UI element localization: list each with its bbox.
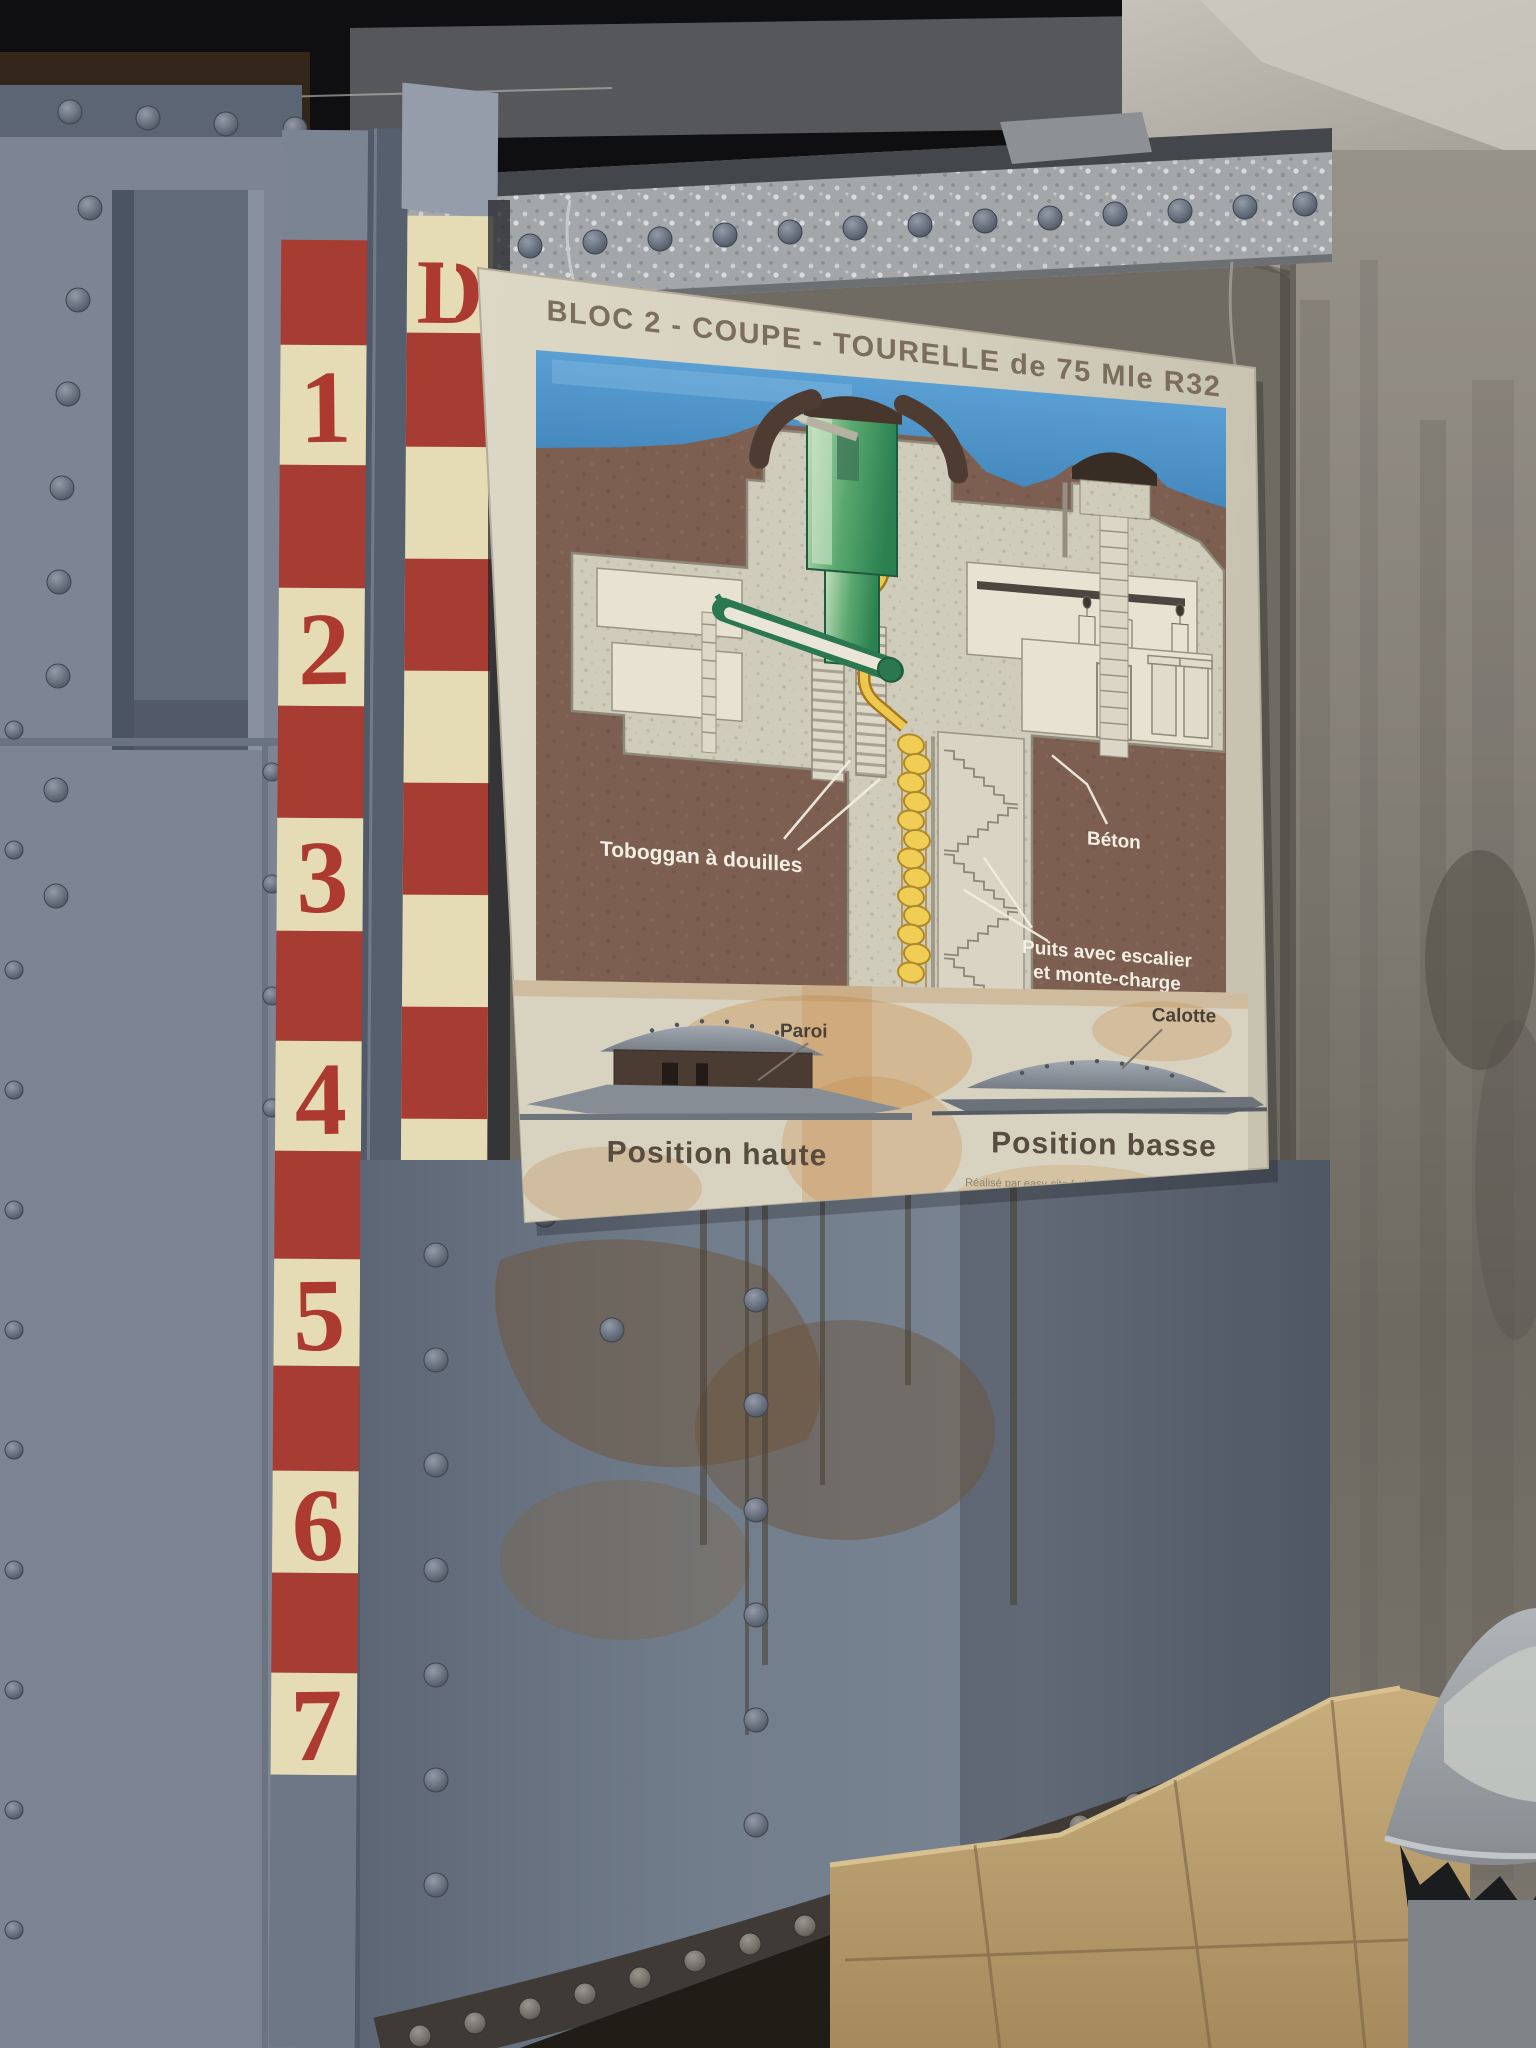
gauge-number-1: 1 <box>299 350 352 466</box>
gauge-number-3: 3 <box>296 820 349 936</box>
gauge-number-2: 2 <box>297 592 350 708</box>
poster-content: BLOC 2 - COUPE - TOURELLE de 75 Mle R32 <box>512 295 1268 1248</box>
haute-port <box>696 1063 708 1085</box>
poster: BLOC 2 - COUPE - TOURELLE de 75 Mle R32 <box>478 268 1268 1248</box>
left-chamber-lower <box>612 642 742 721</box>
gauge-number-7: 7 <box>290 1668 343 1784</box>
haute-port <box>662 1063 678 1085</box>
gauge-number-4: 4 <box>294 1042 347 1158</box>
recess-highlight <box>248 190 264 750</box>
left-wall-recess-panel <box>112 190 264 750</box>
board-bracket <box>401 83 498 220</box>
stencil-gap <box>443 256 456 318</box>
mud-smear <box>500 1480 750 1640</box>
carriage-highlight <box>812 413 832 565</box>
label-paroi: Paroi <box>780 1021 828 1043</box>
wall-streak <box>1420 420 1446 1720</box>
mud-smear <box>695 1320 995 1540</box>
recess-shadow <box>112 190 134 750</box>
stair-shaft <box>938 732 1024 1017</box>
label-calotte: Calotte <box>1152 1005 1216 1027</box>
left-metal-wall <box>0 85 307 2048</box>
cross-section-diagram: Toboggan à douilles Béton Puits avec esc… <box>536 350 1226 1044</box>
wall-seam-vertical <box>262 745 268 2048</box>
numbered-gauge-board: 1 2 3 4 5 6 7 <box>269 130 374 2048</box>
photo-scene: 1 2 3 4 5 6 7 D <box>0 0 1536 2048</box>
wall-seam-horizontal <box>0 738 302 746</box>
gauge-number-6: 6 <box>291 1468 344 1584</box>
arm-knob <box>878 657 902 683</box>
trash-body <box>1408 1900 1536 2048</box>
wall-streak <box>1360 260 1378 1860</box>
gauge-number-5: 5 <box>293 1258 346 1374</box>
scene-svg: 1 2 3 4 5 6 7 D <box>0 0 1536 2048</box>
caption-position-basse: Position basse <box>991 1126 1217 1163</box>
breech-shadow <box>837 435 859 481</box>
caption-position-haute: Position haute <box>607 1136 828 1173</box>
cloche-collar <box>1080 480 1150 520</box>
cloche-shaft <box>1100 515 1128 757</box>
